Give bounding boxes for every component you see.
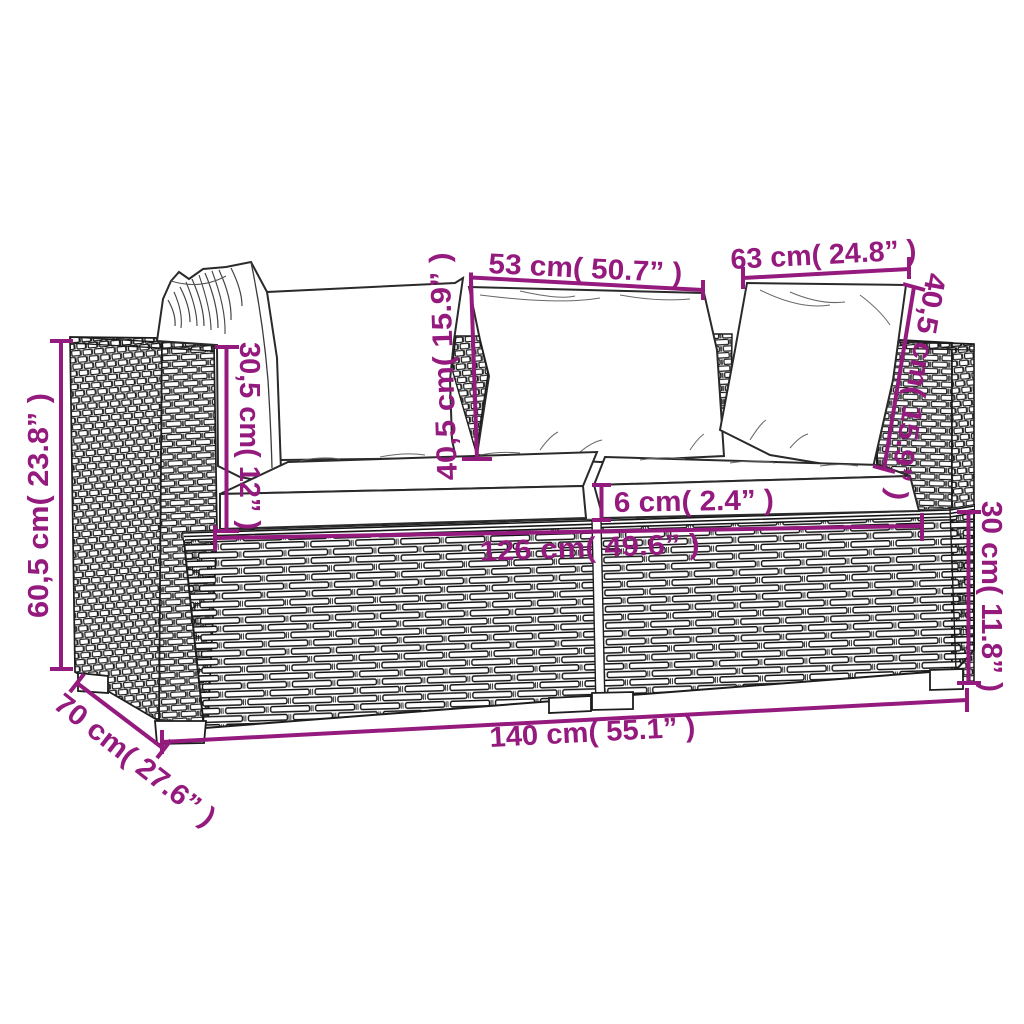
svg-text:60,5 cm( 23.8” ): 60,5 cm( 23.8” ): [23, 393, 55, 618]
svg-text:30,5 cm( 12” ): 30,5 cm( 12” ): [233, 342, 265, 530]
svg-text:6 cm( 2.4” ): 6 cm( 2.4” ): [614, 484, 775, 519]
svg-text:30 cm( 11.8” ): 30 cm( 11.8” ): [975, 501, 1007, 692]
